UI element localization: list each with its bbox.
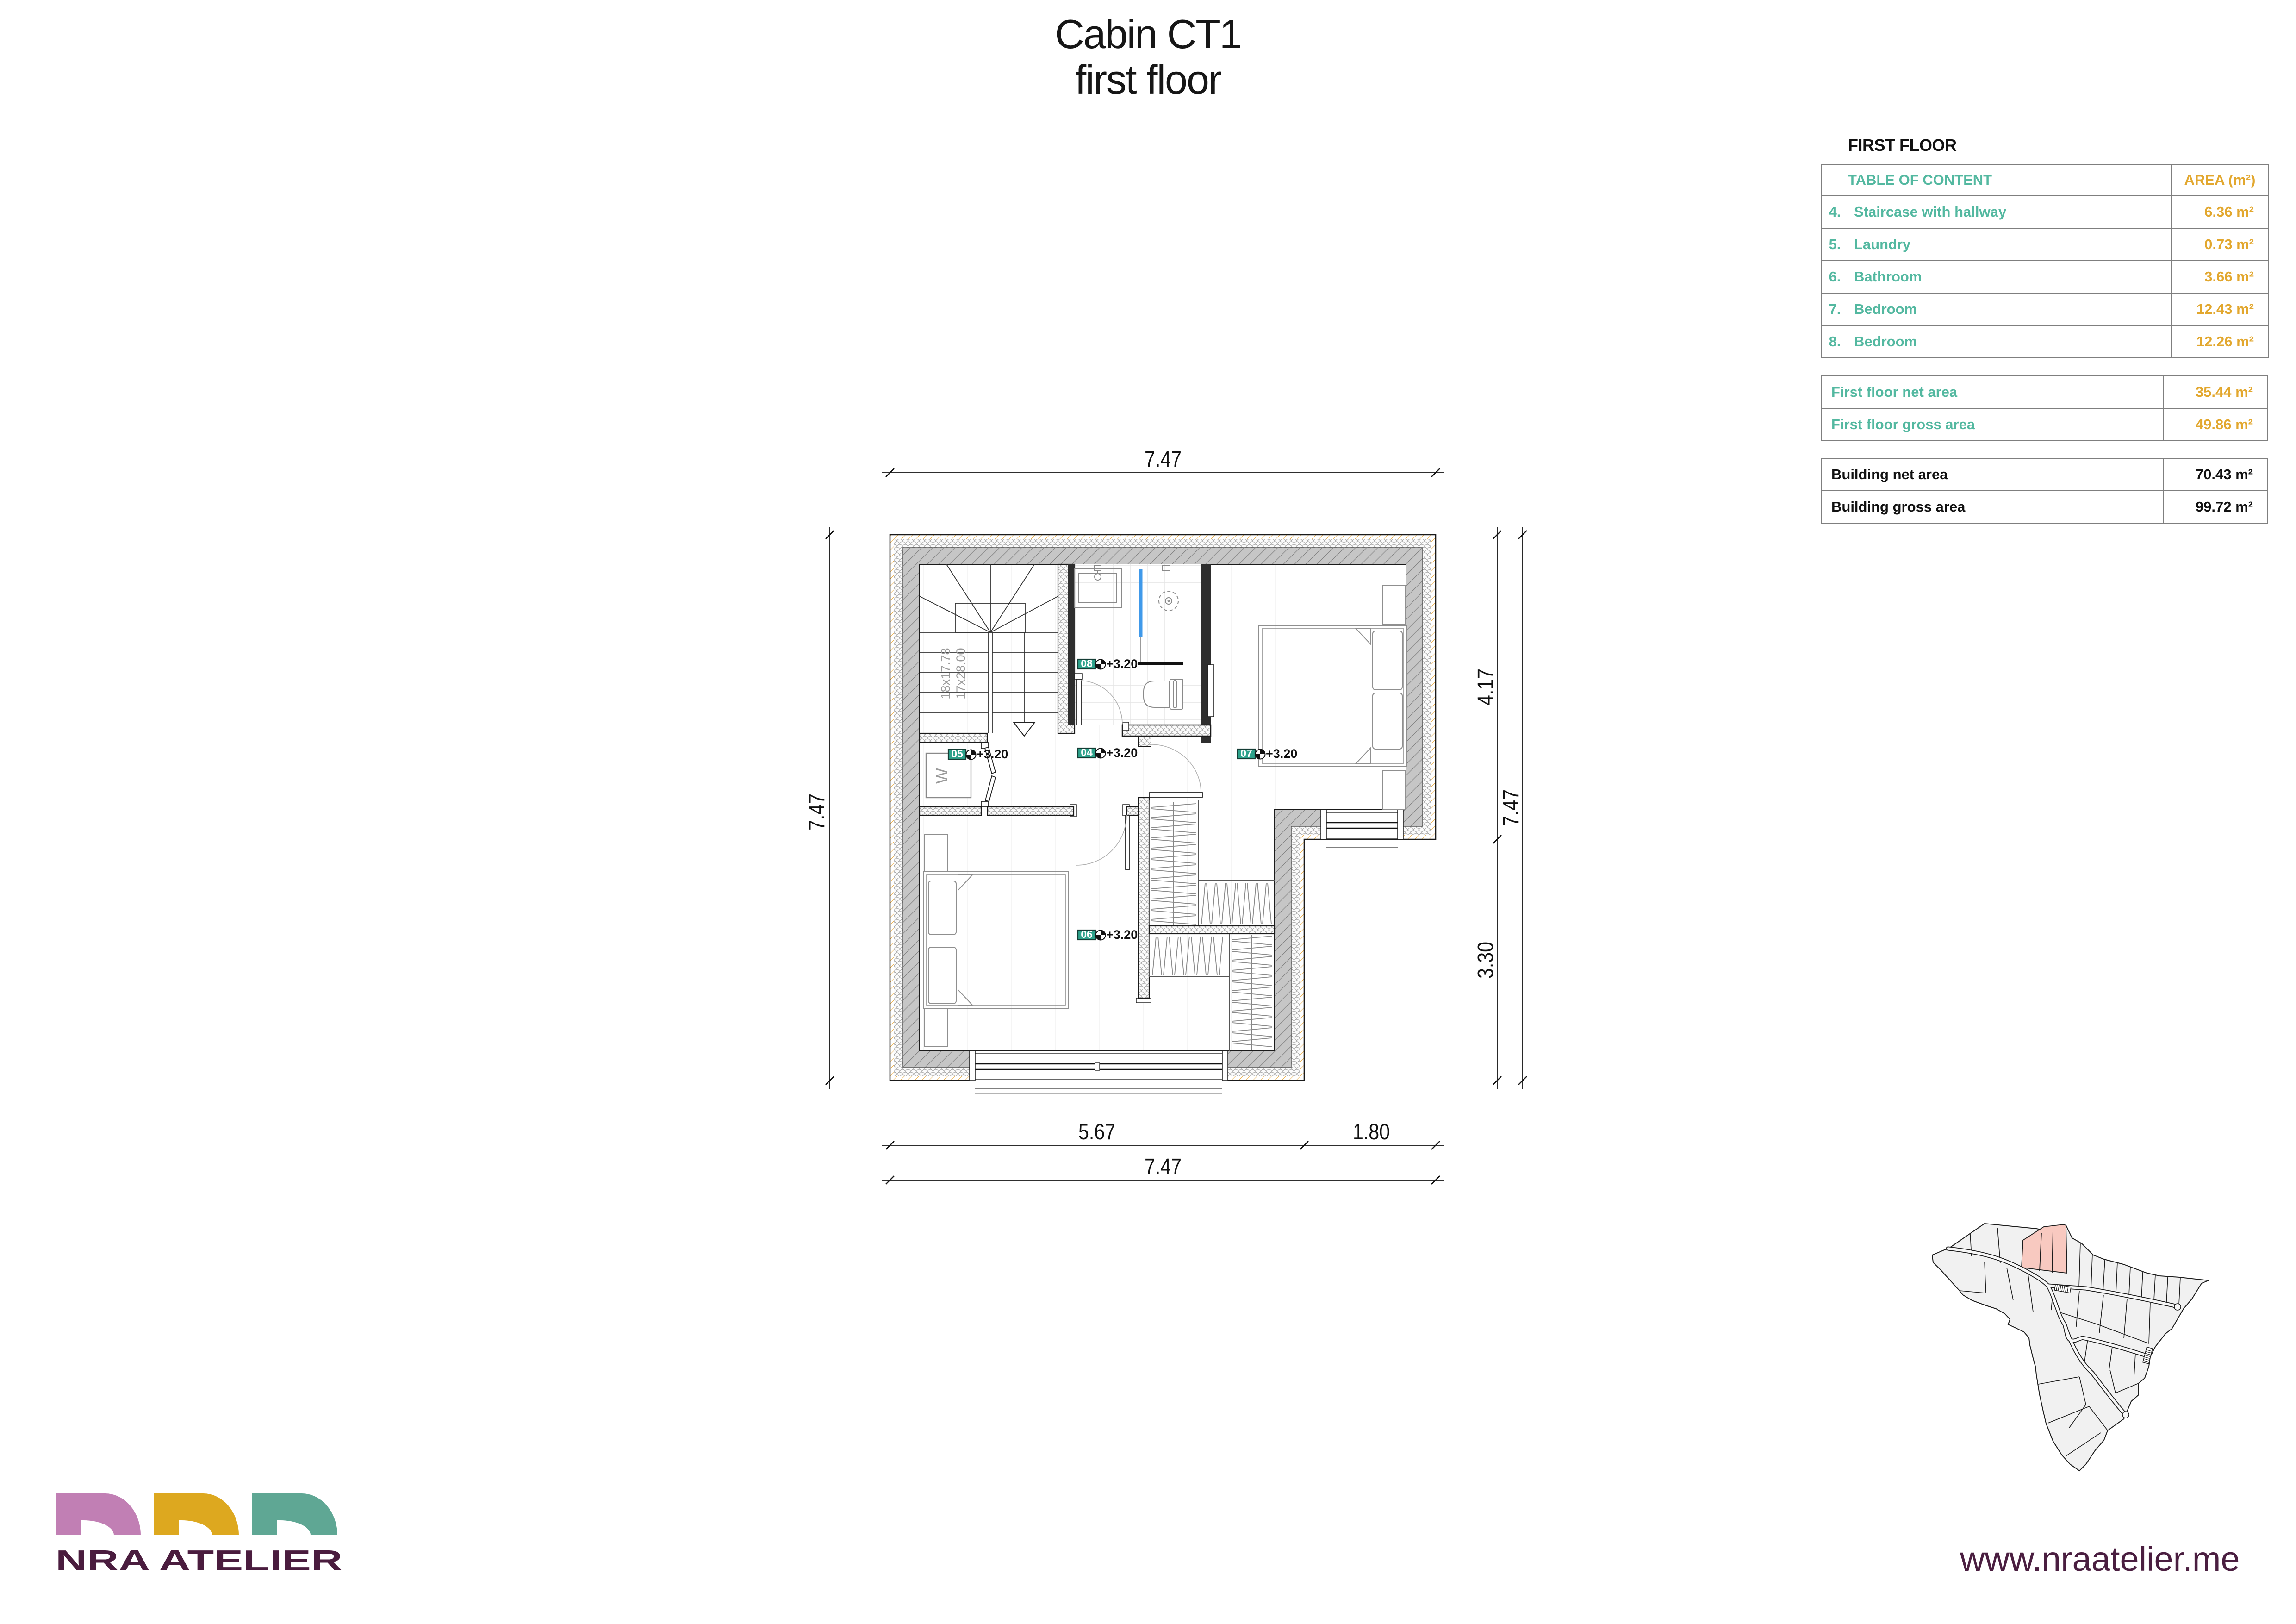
svg-text:05: 05 <box>951 748 963 760</box>
svg-text:5.67: 5.67 <box>1078 1120 1115 1144</box>
svg-text:06: 06 <box>1081 928 1093 940</box>
svg-text:7.47: 7.47 <box>1145 447 1182 472</box>
svg-text:07: 07 <box>1240 747 1252 759</box>
svg-text:7.47: 7.47 <box>1499 789 1524 826</box>
svg-text:+3.20: +3.20 <box>1106 657 1138 671</box>
svg-text:3.30: 3.30 <box>1474 942 1498 979</box>
svg-text:17x28.00: 17x28.00 <box>954 648 968 699</box>
svg-text:7.47: 7.47 <box>805 793 829 831</box>
svg-text:1.80: 1.80 <box>1353 1120 1390 1144</box>
svg-text:W: W <box>932 768 951 784</box>
svg-text:+3.20: +3.20 <box>977 747 1008 761</box>
svg-text:08: 08 <box>1081 657 1093 669</box>
svg-text:04: 04 <box>1081 746 1093 758</box>
svg-text:+3.20: +3.20 <box>1266 747 1297 761</box>
svg-text:18x17.78: 18x17.78 <box>939 648 952 699</box>
svg-text:+3.20: +3.20 <box>1106 928 1138 942</box>
svg-text:4.17: 4.17 <box>1474 668 1498 706</box>
svg-text:7.47: 7.47 <box>1145 1155 1182 1179</box>
svg-text:+3.20: +3.20 <box>1106 746 1138 760</box>
svg-text:NRA ATELIER: NRA ATELIER <box>56 1545 342 1577</box>
